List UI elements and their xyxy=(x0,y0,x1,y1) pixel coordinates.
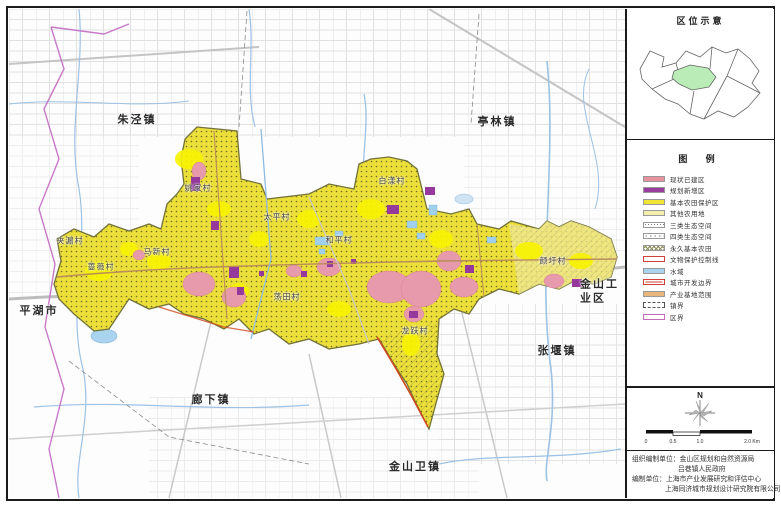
town-label-tinglin: 亭林镇 xyxy=(478,113,517,129)
location-minimap xyxy=(628,27,773,135)
compass-rose-icon: N xyxy=(685,391,715,426)
credit-town-gov: 吕巷镇人民政府 xyxy=(632,465,770,475)
scale-bar: 0 0.5 1.0 2.0 Km xyxy=(645,430,760,445)
legend-row-town-boundary: 镇界 xyxy=(643,300,774,312)
swatch-industry-area xyxy=(643,291,665,297)
town-label-pinghu: 平湖市 xyxy=(20,302,59,318)
town-label-jinshanwei: 金山卫镇 xyxy=(389,458,441,474)
side-panel: 区位示意 图 例 现状已建区 规划新增区 基本农田保护区 其他农用地 三类生态空… xyxy=(625,9,774,498)
legend-title: 图 例 xyxy=(627,140,774,171)
svg-text:N: N xyxy=(697,391,703,400)
legend-row-basic-farmland: 基本农田保护区 xyxy=(643,196,774,208)
village-label-baiyang: 白漾村 xyxy=(379,176,406,187)
location-inset-title: 区位示意 xyxy=(627,9,774,27)
village-label-yaojia: 姚家村 xyxy=(185,183,212,194)
town-label-zhujing: 朱泾镇 xyxy=(118,111,157,127)
location-inset-section: 区位示意 xyxy=(627,9,774,140)
town-label-jinshan-industry: 金山工业区 xyxy=(580,278,625,306)
village-label-taiping: 太平村 xyxy=(264,212,291,223)
village-label-longyue: 龙跃村 xyxy=(402,326,429,337)
village-label-jialou: 夹漏村 xyxy=(57,236,84,247)
planning-map-sheet: 朱泾镇 亭林镇 平湖市 廊下镇 金山卫镇 张堰镇 金山工业区 姚家村 夹漏村 蔷… xyxy=(0,0,781,507)
legend-row-perm-farmland: 永久基本农田 xyxy=(643,242,774,254)
map-graphics xyxy=(9,9,625,498)
swatch-existing-built xyxy=(643,176,665,182)
svg-text:2.0 Km: 2.0 Km xyxy=(744,439,760,445)
legend-row-other-farmland: 其他农用地 xyxy=(643,208,774,220)
legend-row-industry-area: 产业基地范围 xyxy=(643,288,774,300)
swatch-eco4 xyxy=(643,233,665,239)
village-label-yanwei: 颜圩村 xyxy=(540,256,567,267)
svg-text:1.0: 1.0 xyxy=(697,439,704,445)
village-label-heping: 和平村 xyxy=(326,235,353,246)
village-label-qiangwei: 蔷薇村 xyxy=(88,262,115,273)
legend-items: 现状已建区 规划新增区 基本农田保护区 其他农用地 三类生态空间 四类生态空间 … xyxy=(627,171,774,323)
swatch-basic-farmland xyxy=(643,199,665,205)
credits-section: 组织编制单位：金山区规划和自然资源局 吕巷镇人民政府 编制单位：上海市产业发展研… xyxy=(627,451,774,500)
swatch-water xyxy=(643,268,665,274)
town-label-langxia: 廊下镇 xyxy=(192,391,231,407)
swatch-other-farmland xyxy=(643,210,665,216)
legend-row-planned-new: 规划新增区 xyxy=(643,185,774,197)
swatch-perm-farmland xyxy=(643,245,665,251)
svg-text:0.5: 0.5 xyxy=(670,439,677,445)
credit-institute: 上海同济城市规划设计研究院有限公司 xyxy=(632,485,770,495)
swatch-relic-line xyxy=(643,256,665,262)
credit-compiler: 编制单位：上海市产业发展研究和评估中心 xyxy=(632,475,770,485)
compass-scale-section: N 0 0.5 1.0 2.0 Km xyxy=(627,388,774,451)
village-label-maxin: 马新村 xyxy=(144,247,171,258)
legend-row-urban-boundary: 城市开发边界 xyxy=(643,277,774,289)
compass-and-scale: N 0 0.5 1.0 2.0 Km xyxy=(628,388,773,448)
legend-row-existing-built: 现状已建区 xyxy=(643,173,774,185)
legend-row-water: 水域 xyxy=(643,265,774,277)
swatch-eco3 xyxy=(643,222,665,228)
village-label-dangtian: 荡田村 xyxy=(274,292,301,303)
map-canvas: 朱泾镇 亭林镇 平湖市 廊下镇 金山卫镇 张堰镇 金山工业区 姚家村 夹漏村 蔷… xyxy=(9,9,625,498)
swatch-district-boundary xyxy=(643,314,665,320)
swatch-town-boundary xyxy=(643,302,665,308)
legend-row-eco4: 四类生态空间 xyxy=(643,231,774,243)
credit-organizer: 组织编制单位：金山区规划和自然资源局 xyxy=(632,455,770,465)
legend-row-relic-line: 文物保护控制线 xyxy=(643,254,774,266)
swatch-urban-boundary xyxy=(643,279,665,285)
swatch-planned-new xyxy=(643,187,665,193)
svg-text:0: 0 xyxy=(645,439,648,445)
legend-row-district-boundary: 区界 xyxy=(643,311,774,323)
legend-section: 图 例 现状已建区 规划新增区 基本农田保护区 其他农用地 三类生态空间 四类生… xyxy=(627,140,774,387)
legend-row-eco3: 三类生态空间 xyxy=(643,219,774,231)
town-label-zhangyan: 张堰镇 xyxy=(538,342,577,358)
